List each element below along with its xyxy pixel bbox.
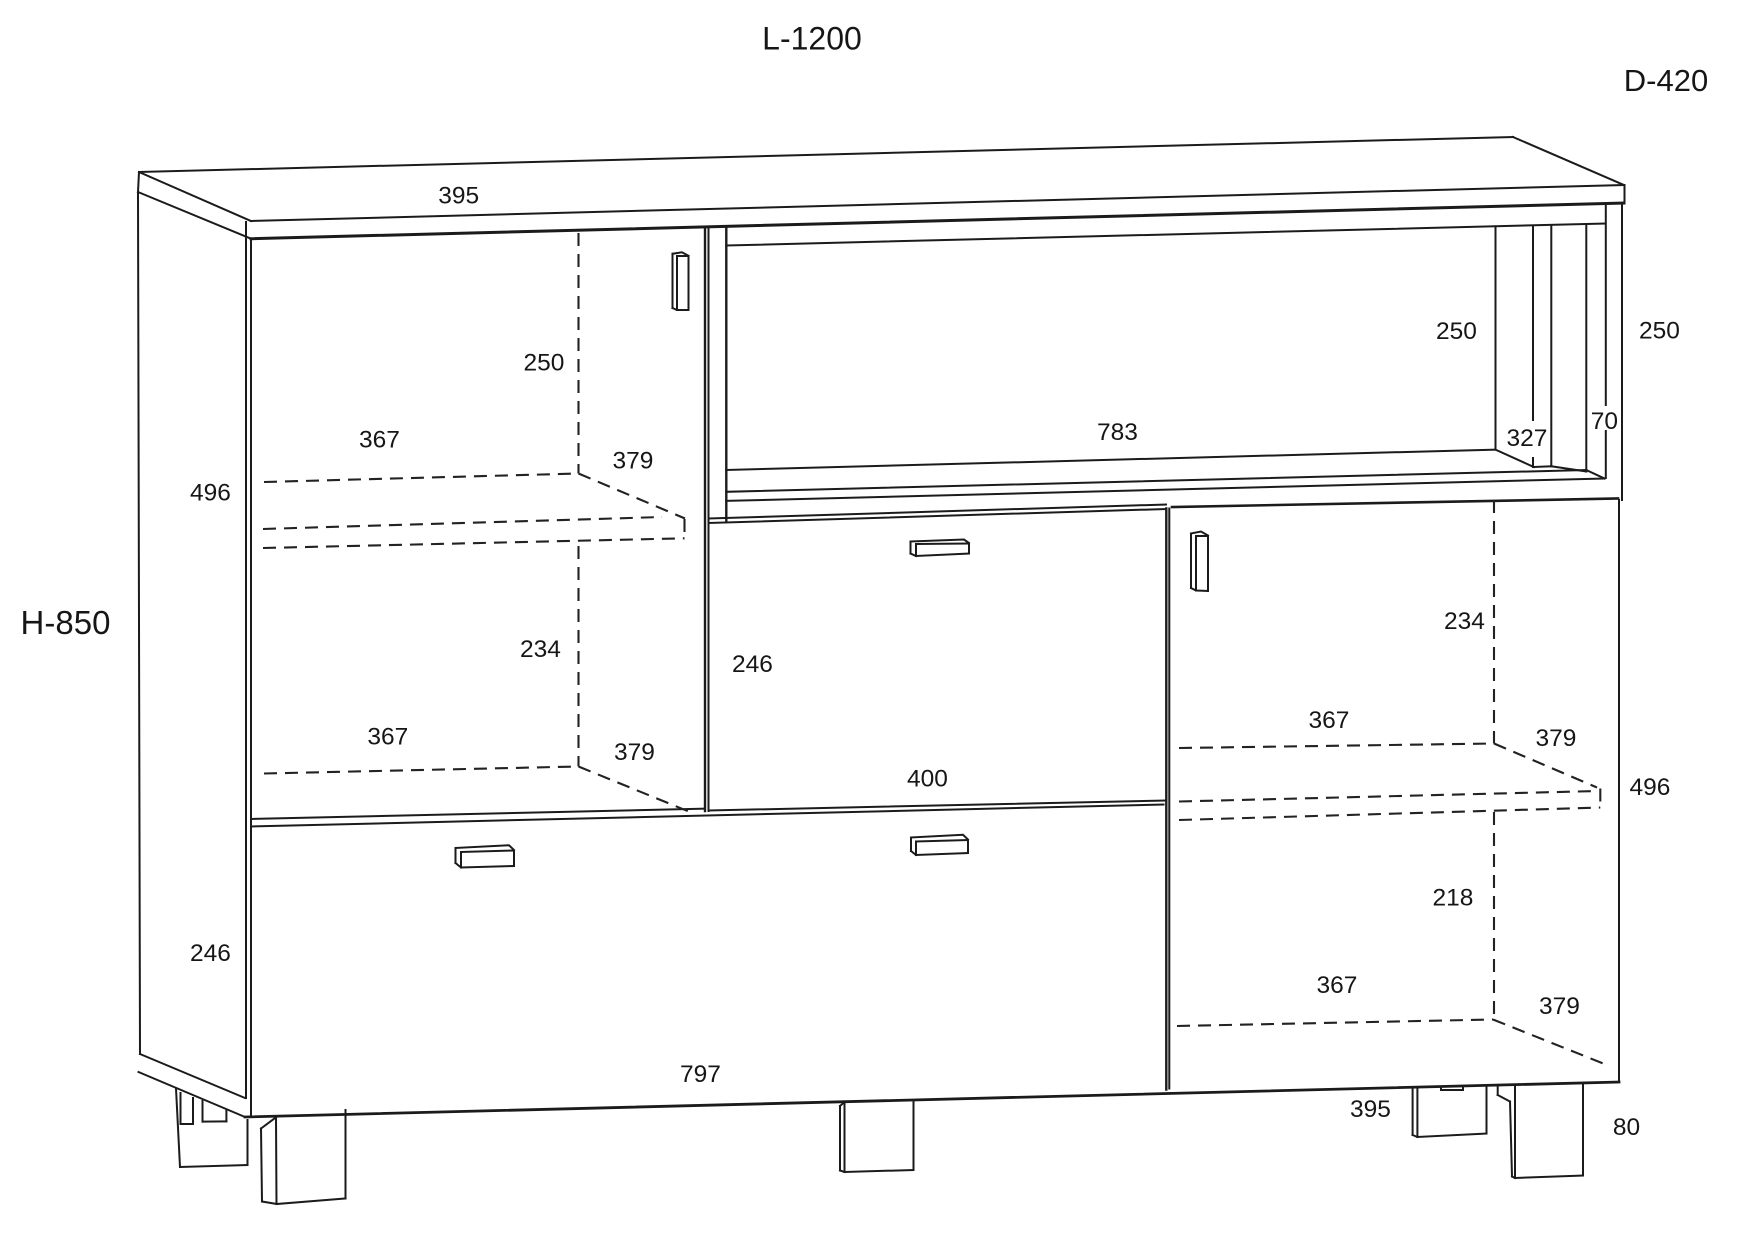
svg-text:70: 70 (1591, 408, 1618, 435)
svg-text:400: 400 (907, 766, 948, 793)
svg-text:496: 496 (190, 480, 231, 507)
svg-text:246: 246 (190, 940, 231, 967)
svg-text:218: 218 (1433, 885, 1474, 912)
svg-text:367: 367 (359, 427, 400, 454)
svg-text:L-1200: L-1200 (762, 21, 862, 57)
svg-text:D-420: D-420 (1624, 63, 1708, 98)
svg-text:379: 379 (614, 739, 655, 766)
svg-text:783: 783 (1097, 419, 1138, 446)
svg-text:797: 797 (680, 1061, 721, 1088)
svg-text:496: 496 (1630, 774, 1671, 801)
svg-text:250: 250 (524, 350, 565, 377)
svg-text:234: 234 (1444, 608, 1485, 635)
svg-text:234: 234 (520, 636, 561, 663)
svg-text:80: 80 (1613, 1114, 1640, 1141)
svg-text:H-850: H-850 (21, 604, 111, 641)
svg-text:250: 250 (1639, 318, 1680, 345)
svg-text:367: 367 (367, 724, 408, 751)
svg-text:246: 246 (732, 651, 773, 678)
svg-text:327: 327 (1507, 425, 1548, 452)
svg-text:379: 379 (1536, 725, 1577, 752)
svg-text:379: 379 (1539, 993, 1580, 1020)
svg-text:367: 367 (1309, 707, 1350, 734)
svg-text:367: 367 (1317, 972, 1358, 999)
svg-text:395: 395 (438, 183, 479, 210)
svg-text:395: 395 (1350, 1096, 1391, 1123)
svg-text:250: 250 (1436, 318, 1477, 345)
svg-text:379: 379 (613, 448, 654, 475)
